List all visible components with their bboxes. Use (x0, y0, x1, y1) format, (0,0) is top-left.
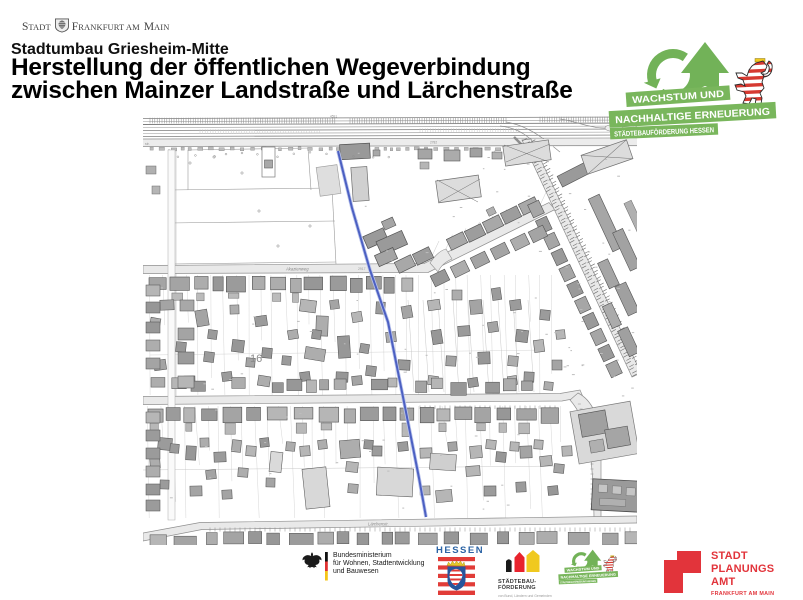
svg-text:2782: 2782 (430, 141, 437, 145)
svg-text:Akazienweg: Akazienweg (285, 266, 309, 271)
svg-text:2917: 2917 (358, 267, 366, 271)
svg-text:4591: 4591 (330, 115, 337, 119)
svg-text:16: 16 (250, 353, 262, 365)
svg-text:Lärchenstr.: Lärchenstr. (368, 522, 389, 527)
svg-text:str.: str. (145, 142, 150, 146)
